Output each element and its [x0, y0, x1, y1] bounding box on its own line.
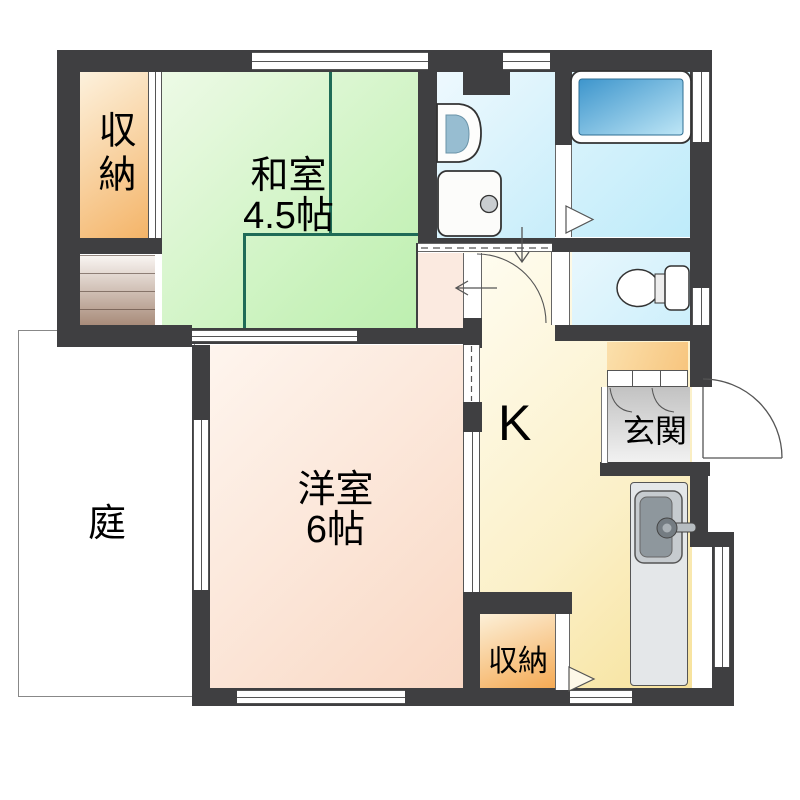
shoe-cabinet-divider [632, 370, 633, 387]
japanese-room-size: 4.5帖 [196, 196, 381, 236]
entrance-label: 玄関 [616, 406, 694, 452]
entry-door-swing [703, 379, 782, 458]
sliding-door-western-kitchen [463, 432, 480, 592]
wall-bottom-left-corner [57, 325, 192, 347]
shoe-cabinet [607, 342, 688, 370]
wall-storage-bottom-north [463, 592, 572, 614]
japanese-room-label: 和室 4.5帖 [196, 156, 381, 236]
window-top-washroom [503, 52, 550, 70]
western-room-name: 洋室 [243, 470, 428, 510]
wall-hall-door-post [463, 318, 482, 348]
kitchen-counter [630, 482, 688, 686]
wall-left [57, 50, 80, 347]
wall-bath-divider [555, 57, 572, 145]
room-edge-line [416, 243, 418, 328]
window-top-japanese-room [252, 52, 428, 70]
floor-plan: 収納 和室 4.5帖 洋室 6帖 庭 K 玄関 収納 [0, 0, 800, 800]
entrance-step-edge [601, 387, 608, 463]
toilet-room-area [572, 252, 690, 325]
tatami-line [243, 233, 246, 328]
wall-storage-tl-bottom [57, 238, 162, 254]
window-east-bath [692, 72, 710, 142]
window-bottom-western-room [237, 690, 405, 704]
shoe-cabinet-counter [607, 370, 688, 387]
western-room-label: 洋室 6帖 [243, 470, 428, 550]
hall-strip-area [418, 253, 463, 328]
kitchen-label: K [498, 398, 531, 448]
shoe-cabinet-divider [660, 370, 661, 387]
opening-western-kitchen [463, 345, 480, 402]
closet-door-storage-top-left [148, 72, 162, 238]
storage-bottom-label: 収納 [478, 636, 558, 680]
sliding-door-washroom [418, 243, 552, 252]
stairs-area [72, 255, 155, 327]
wall-washroom-notch [463, 68, 510, 95]
door-bath [555, 145, 572, 237]
western-room-size: 6帖 [243, 510, 428, 550]
door-leaf-hall-kitchen [463, 253, 482, 318]
wall-kitchen-boundary-post [463, 402, 482, 432]
wall-washroom-west [418, 57, 437, 245]
sliding-door-japanese-western [192, 330, 357, 342]
window-east-toilet [692, 288, 710, 325]
window-western-room-west [193, 420, 209, 590]
window-east-kitchen [714, 547, 730, 667]
japanese-room-name: 和室 [196, 156, 381, 196]
storage-top-left-label: 収納 [86, 110, 141, 198]
garden-label: 庭 [88, 492, 126, 547]
window-bottom-kitchen [570, 690, 632, 704]
door-toilet [551, 252, 570, 325]
bathroom-area [572, 67, 690, 237]
wall-toilet-south [555, 325, 690, 341]
